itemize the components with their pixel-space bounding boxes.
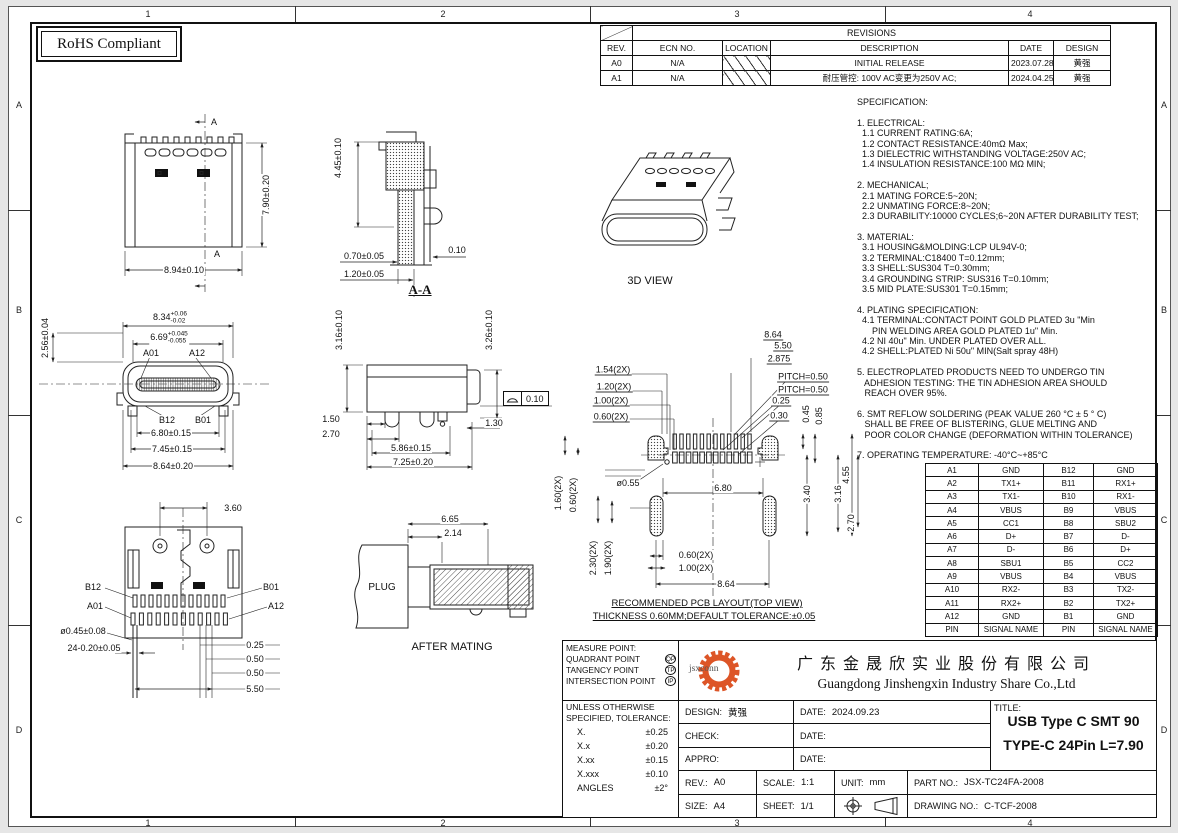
spec-line: [857, 222, 1139, 232]
spec-line: [857, 440, 1139, 450]
measure-point-label: TANGENCY POINT: [566, 665, 639, 675]
zone-col: 1: [145, 818, 150, 828]
zone-row: D: [1161, 725, 1168, 735]
revisions-header-row: REV. ECN NO. LOCATION DESCRIPTION DATE D…: [601, 41, 1111, 56]
pin-cell: B9: [1044, 503, 1094, 516]
col-header: PIN: [1044, 623, 1094, 636]
revisions-corner: [601, 26, 633, 41]
measure-point-box: MEASURE POINT: QUADRANT POINT QP TANGENC…: [562, 640, 679, 701]
spec-line: SPECIFICATION:: [857, 97, 1139, 107]
spec-line: [857, 170, 1139, 180]
pin-label: B01: [194, 415, 212, 425]
spec-line: 3.5 MID PLATE:SUS301 T=0.15mm;: [857, 284, 1139, 294]
pin-row: A3 TX1- B10 RX1-: [926, 490, 1158, 503]
dim-label: 3.16: [833, 484, 843, 504]
pin-label: B12: [158, 415, 176, 425]
spec-line: [857, 294, 1139, 304]
spec-line: REACH OVER 95%.: [857, 388, 1139, 398]
signal-cell: GND: [979, 610, 1044, 623]
tolerance-digits: X.xxx: [577, 769, 599, 779]
tolerance-value: ±0.10: [646, 769, 668, 779]
tolerance-digits: X.x: [577, 741, 590, 751]
dim-label: 0.70±0.05: [343, 251, 385, 261]
signal-cell: CC1: [979, 517, 1044, 530]
pcb-caption: THICKNESS 0.60MM;DEFAULT TOLERANCE:±0.05: [592, 612, 817, 622]
dim-label: 5.50: [773, 341, 793, 352]
dim-label: 5.86±0.15: [390, 443, 432, 453]
dim-label: 4.55: [841, 465, 851, 485]
title-label: TITLE:: [991, 701, 1156, 713]
dim-label: ø0.45±0.08: [59, 626, 106, 636]
spec-line: 7. OPERATING TEMPERATURE: -40°C~+85°C: [857, 450, 1139, 460]
pin-cell: B4: [1044, 570, 1094, 583]
profile-tolerance-frame: 0.10: [503, 391, 549, 406]
spec-line: 2.3 DURABILITY:10000 CYCLES;6~20N AFTER …: [857, 211, 1139, 221]
field-label: DATE:: [800, 707, 826, 717]
col-header: ECN NO.: [633, 41, 723, 56]
dim-label: 8.64: [716, 579, 736, 589]
measure-point-rows: QUADRANT POINT QP TANGENCY POINT TP INTE…: [563, 653, 678, 686]
dim-label: 2.70: [846, 513, 856, 533]
spec-line: 4.2 SHELL:PLATED Ni 50u" MIN(Salt spray …: [857, 346, 1139, 356]
dim-label: 7.45±0.15: [151, 444, 193, 454]
dim-label: ø0.55: [615, 478, 640, 488]
tolerance-digits: X.xx: [577, 755, 595, 765]
spec-line: 1. ELECTRICAL:: [857, 118, 1139, 128]
dim-label: 8.64: [763, 330, 783, 341]
field-label: REV.:: [685, 778, 708, 788]
tolerance-digits: X.: [577, 727, 586, 737]
dim-label: 1.20±0.05: [343, 269, 385, 279]
spec-line: 5. ELECTROPLATED PRODUCTS NEED TO UNDERG…: [857, 367, 1139, 377]
spec-line: 2.2 UNMATING FORCE:8~20N;: [857, 201, 1139, 211]
dim-label: 0.10: [447, 245, 467, 255]
signal-cell: D+: [1094, 543, 1158, 556]
pin-rows: A1 GND B12 GND A2 TX1+ B11 RX1+ A3 TX1- …: [926, 464, 1158, 624]
signal-cell: CC2: [1094, 557, 1158, 570]
spec-line: POOR COLOR CHANGE (DEFORMATION WITHIN TO…: [857, 430, 1139, 440]
dim-label: 0.60(2X): [678, 550, 715, 560]
revisions-title: REVISIONS: [633, 26, 1111, 41]
dim-label: 24-0.20±0.05: [67, 643, 122, 653]
measure-point-code: IP: [665, 676, 676, 686]
profile-value: 0.10: [522, 392, 548, 405]
rev-cell: REV.: A0: [678, 770, 757, 795]
pin-table-footer: PIN SIGNAL NAME PIN SIGNAL NAME: [926, 623, 1158, 636]
tolerance-value: ±2°: [654, 783, 668, 793]
spec-line: 3. MATERIAL:: [857, 232, 1139, 242]
view-caption: AFTER MATING: [410, 642, 493, 652]
spec-line: ADHESION TESTING: THE TIN ADHESION AREA …: [857, 378, 1139, 388]
col-header: SIGNAL NAME: [1094, 623, 1158, 636]
company-logo-text: jsxconn: [689, 664, 719, 674]
pin-label: A01: [142, 348, 160, 358]
design-cell: DESIGN: 黄强: [678, 700, 794, 724]
signal-cell: RX2-: [979, 583, 1044, 596]
tolerance-value: ±0.15: [646, 755, 668, 765]
zone-row: A: [16, 100, 22, 110]
pin-cell: A1: [926, 464, 979, 477]
zone-row: C: [1161, 515, 1168, 525]
pin-cell: B8: [1044, 517, 1094, 530]
field-label: DESIGN:: [685, 707, 722, 717]
tolerance-rows: X. ±0.25 X.x ±0.20 X.xx ±0.15 X.xxx ±0.1…: [563, 723, 678, 793]
pin-row: A10 RX2- B3 TX2-: [926, 583, 1158, 596]
pin-cell: A12: [926, 610, 979, 623]
signal-cell: GND: [1094, 464, 1158, 477]
dim-label: 8.94±0.10: [163, 265, 205, 275]
field-value: 2024.09.23: [832, 707, 880, 718]
dim-label: PITCH=0.50: [777, 385, 829, 396]
zone-col: 2: [440, 9, 445, 19]
tolerance-row: X. ±0.25: [563, 723, 678, 737]
signal-cell: D-: [979, 543, 1044, 556]
spec-line: 3.1 HOUSING&MOLDING:LCP UL94V-0;: [857, 242, 1139, 252]
dim-label: 1.30: [484, 418, 504, 428]
pin-table: A1 GND B12 GND A2 TX1+ B11 RX1+ A3 TX1- …: [925, 463, 1158, 637]
pin-cell: B2: [1044, 596, 1094, 609]
field-label: SCALE:: [763, 778, 795, 788]
rev-cell: A1: [601, 71, 633, 86]
pin-cell: B3: [1044, 583, 1094, 596]
spec-line: 1.4 INSULATION RESISTANCE:100 MΩ MIN;: [857, 159, 1139, 169]
field-value: A0: [714, 777, 726, 788]
dim-label: 6.65: [440, 514, 460, 524]
drawing-no-cell: DRAWING NO.: C-TCF-2008: [907, 794, 1157, 818]
dim-label: 3.60: [223, 503, 243, 513]
zone-col: 2: [440, 818, 445, 828]
dim-label: 6.69+0.045-0.055: [149, 332, 189, 345]
tolerance-note: UNLESS OTHERWISE: [563, 701, 678, 712]
rev-cell: A0: [601, 56, 633, 71]
dim-label: 1.90(2X): [603, 540, 613, 577]
signal-cell: TX1+: [979, 477, 1044, 490]
pin-cell: A10: [926, 583, 979, 596]
dim-label: 1.00(2X): [678, 563, 715, 573]
rohs-label: RoHS Compliant: [41, 31, 177, 57]
zone-tick: [1157, 415, 1171, 416]
pin-row: A11 RX2+ B2 TX2+: [926, 596, 1158, 609]
dim-label: 0.85: [814, 406, 824, 426]
signal-cell: VBUS: [1094, 570, 1158, 583]
dim-label: 0.50: [245, 654, 265, 664]
dim-label: 6.80: [713, 483, 733, 493]
col-header: REV.: [601, 41, 633, 56]
pin-row: A6 D+ B7 D-: [926, 530, 1158, 543]
part-no-cell: PART NO.: JSX-TC24FA-2008: [907, 770, 1157, 795]
signal-cell: SBU2: [1094, 517, 1158, 530]
date-cell: 2023.07.28: [1009, 56, 1054, 71]
col-header: DATE: [1009, 41, 1054, 56]
zone-row: B: [16, 305, 22, 315]
pin-cell: A9: [926, 570, 979, 583]
profile-symbol-icon: [504, 392, 522, 405]
dim-label: 1.54(2X): [595, 365, 632, 376]
signal-cell: VBUS: [979, 503, 1044, 516]
zone-col: 4: [1027, 9, 1032, 19]
zone-row: B: [1161, 305, 1167, 315]
dim-label: 3.16±0.10: [334, 309, 344, 351]
location-cell: [723, 56, 771, 71]
field-value: JSX-TC24FA-2008: [964, 777, 1044, 788]
spec-line: [857, 357, 1139, 367]
pin-cell: B11: [1044, 477, 1094, 490]
appro-date-cell: DATE:: [793, 747, 991, 771]
dim-label: 3.40: [802, 484, 812, 504]
dim-label: 4.45±0.10: [333, 137, 343, 179]
dim-label: 1.00(2X): [593, 396, 630, 407]
dim-label: 0.25: [245, 640, 265, 650]
dim-label: 8.34+0.06-0.02: [152, 312, 188, 325]
revisions-rows: A0 N/A INITIAL RELEASE 2023.07.28 黄强 A1 …: [601, 56, 1111, 86]
tolerance-box: UNLESS OTHERWISE SPECIFIED, TOLERANCE: X…: [562, 700, 679, 818]
check-cell: CHECK:: [678, 723, 794, 748]
pin-cell: A2: [926, 477, 979, 490]
pin-row: A8 SBU1 B5 CC2: [926, 557, 1158, 570]
company-name-cn: 广东金晟欣实业股份有限公司: [757, 650, 1136, 674]
spec-line: 2.1 MATING FORCE:5~20N;: [857, 191, 1139, 201]
tolerance-value: ±0.25: [646, 727, 668, 737]
dim-label: 2.875: [767, 354, 792, 365]
spec-line: PIN WELDING AREA GOLD PLATED 1u" Min.: [857, 326, 1139, 336]
zone-tick: [590, 818, 591, 827]
zone-row: C: [16, 515, 23, 525]
title-box: TITLE: USB Type C SMT 90 TYPE-C 24Pin L=…: [990, 700, 1157, 771]
pin-label: A12: [188, 348, 206, 358]
scale-cell: SCALE: 1:1: [756, 770, 835, 795]
dim-label: 1.60(2X): [553, 475, 563, 512]
zone-col: 1: [145, 9, 150, 19]
zone-tick: [8, 210, 30, 211]
description-cell: INITIAL RELEASE: [771, 56, 1009, 71]
ecn-cell: N/A: [633, 71, 723, 86]
dim-label: 0.50: [245, 668, 265, 678]
pin-cell: A4: [926, 503, 979, 516]
spec-line: [857, 107, 1139, 117]
plug-label: PLUG: [367, 583, 396, 593]
revision-row: A1 N/A 耐压管控: 100V AC变更为250V AC; 2024.04.…: [601, 71, 1111, 86]
signal-cell: GND: [979, 464, 1044, 477]
spec-line: 4.2 NI 40u" Min. UNDER PLATED OVER ALL.: [857, 336, 1139, 346]
field-value: 1:1: [801, 777, 814, 788]
spec-line: 3.2 TERMINAL:C18400 T=0.12mm;: [857, 253, 1139, 263]
signal-cell: GND: [1094, 610, 1158, 623]
signal-cell: RX1+: [1094, 477, 1158, 490]
description-cell: 耐压管控: 100V AC变更为250V AC;: [771, 71, 1009, 86]
field-label: APPRO:: [685, 754, 719, 764]
col-header: SIGNAL NAME: [979, 623, 1044, 636]
spec-line: SHALL BE FREE OF BLISTERING, GLUE MELTIN…: [857, 419, 1139, 429]
projection-cell: [834, 794, 908, 818]
projection-symbol-icon: [839, 796, 903, 816]
zone-tick: [1157, 210, 1171, 211]
tolerance-row: X.xxx ±0.10: [563, 765, 678, 779]
dim-label: 2.56±0.04: [40, 317, 50, 359]
field-label: DRAWING NO.:: [914, 801, 978, 811]
signal-cell: TX1-: [979, 490, 1044, 503]
section-mark: A: [213, 249, 221, 259]
tolerance-note: SPECIFIED, TOLERANCE:: [563, 712, 678, 723]
pin-cell: A8: [926, 557, 979, 570]
signal-cell: VBUS: [979, 570, 1044, 583]
signal-cell: D-: [1094, 530, 1158, 543]
zone-tick: [8, 625, 30, 626]
zone-tick: [1157, 625, 1171, 626]
pin-cell: A6: [926, 530, 979, 543]
measure-point-code: TP: [665, 665, 676, 675]
revision-row: A0 N/A INITIAL RELEASE 2023.07.28 黄强: [601, 56, 1111, 71]
pin-label: A12: [267, 601, 285, 611]
spec-line: 2. MECHANICAL;: [857, 180, 1139, 190]
zone-row: D: [16, 725, 23, 735]
dim-label: 5.50: [245, 684, 265, 694]
signal-cell: TX2-: [1094, 583, 1158, 596]
col-header: DESCRIPTION: [771, 41, 1009, 56]
pin-cell: A7: [926, 543, 979, 556]
dim-label: 6.80±0.15: [150, 428, 192, 438]
spec-line: 1.3 DIELECTRIC WITHSTANDING VOLTAGE:250V…: [857, 149, 1139, 159]
pin-cell: A3: [926, 490, 979, 503]
zone-tick: [295, 6, 296, 22]
pin-cell: B5: [1044, 557, 1094, 570]
pin-cell: B7: [1044, 530, 1094, 543]
dim-label: 7.90±0.20: [261, 174, 271, 216]
company-logo: jsxconn: [695, 647, 743, 695]
section-mark: A: [210, 117, 218, 127]
section-caption: A-A: [407, 285, 432, 295]
field-value: mm: [870, 777, 886, 788]
dim-label: 0.60(2X): [593, 412, 630, 423]
specification-block: SPECIFICATION:1. ELECTRICAL: 1.1 CURRENT…: [857, 97, 1139, 461]
pin-row: A9 VBUS B4 VBUS: [926, 570, 1158, 583]
dim-label: 2.30(2X): [588, 540, 598, 577]
signal-cell: SBU1: [979, 557, 1044, 570]
measure-point-row: TANGENCY POINT TP: [563, 664, 678, 675]
signal-cell: RX1-: [1094, 490, 1158, 503]
ecn-cell: N/A: [633, 56, 723, 71]
measure-point-row: INTERSECTION POINT IP: [563, 675, 678, 686]
field-label: SIZE:: [685, 801, 708, 811]
field-value: A4: [714, 801, 726, 812]
measure-point-label: QUADRANT POINT: [566, 654, 640, 664]
zone-tick: [885, 818, 886, 827]
zone-col: 3: [734, 818, 739, 828]
spec-line: [857, 398, 1139, 408]
field-label: DATE:: [800, 731, 826, 741]
pin-label: A01: [86, 601, 104, 611]
zone-row: A: [1161, 100, 1167, 110]
tolerance-row: X.x ±0.20: [563, 737, 678, 751]
pin-cell: A11: [926, 596, 979, 609]
signal-cell: RX2+: [979, 596, 1044, 609]
spec-line: 4.1 TERMINAL:CONTACT POINT GOLD PLATED 3…: [857, 315, 1139, 325]
field-value: 黄强: [728, 705, 747, 719]
unit-cell: UNIT: mm: [834, 770, 908, 795]
dim-label: 2.70: [321, 429, 341, 439]
rohs-badge: RoHS Compliant: [36, 26, 182, 62]
dim-label: PITCH=0.50: [777, 372, 829, 383]
pin-label: B01: [262, 582, 280, 592]
pin-row: A5 CC1 B8 SBU2: [926, 517, 1158, 530]
tolerance-row: ANGLES ±2°: [563, 779, 678, 793]
revisions-table: REVISIONS REV. ECN NO. LOCATION DESCRIPT…: [600, 25, 1111, 86]
dim-label: 0.25: [771, 396, 791, 407]
pin-row: A2 TX1+ B11 RX1+: [926, 477, 1158, 490]
field-value: C-TCF-2008: [984, 801, 1037, 812]
dim-label: 1.50: [321, 414, 341, 424]
field-label: CHECK:: [685, 731, 719, 741]
zone-tick: [8, 415, 30, 416]
spec-line: 4. PLATING SPECIFICATION:: [857, 305, 1139, 315]
col-header: LOCATION: [723, 41, 771, 56]
drawing-title-2: TYPE-C 24Pin L=7.90: [991, 737, 1156, 753]
measure-point-title: MEASURE POINT:: [563, 641, 678, 653]
spec-line: 6. SMT REFLOW SOLDERING (PEAK VALUE 260 …: [857, 409, 1139, 419]
measure-point-code: QP: [665, 654, 676, 664]
dim-label: 3.26±0.10: [484, 309, 494, 351]
design-date-cell: DATE: 2024.09.23: [793, 700, 991, 724]
company-header: jsxconn 广东金晟欣实业股份有限公司 Guangdong Jinsheng…: [678, 640, 1157, 701]
field-label: DATE:: [800, 754, 826, 764]
col-header: PIN: [926, 623, 979, 636]
zone-col: 4: [1027, 818, 1032, 828]
measure-point-row: QUADRANT POINT QP: [563, 653, 678, 664]
location-cell: [723, 71, 771, 86]
dim-label: 1.20(2X): [596, 382, 633, 393]
dim-label: 0.45: [801, 404, 811, 424]
design-cell: 黄强: [1054, 71, 1111, 86]
pin-cell: A5: [926, 517, 979, 530]
sheet-cell: SHEET: 1/1: [756, 794, 835, 818]
dim-label: 7.25±0.20: [392, 457, 434, 467]
dim-label: 2.14: [443, 528, 463, 538]
appro-cell: APPRO:: [678, 747, 794, 771]
field-label: SHEET:: [763, 801, 795, 811]
check-date-cell: DATE:: [793, 723, 991, 748]
pin-cell: B10: [1044, 490, 1094, 503]
pin-row: A7 D- B6 D+: [926, 543, 1158, 556]
company-name-en: Guangdong Jinshengxin Industry Share Co.…: [757, 676, 1136, 692]
col-header: DESIGN: [1054, 41, 1111, 56]
signal-cell: D+: [979, 530, 1044, 543]
measure-point-label: INTERSECTION POINT: [566, 676, 655, 686]
tolerance-row: X.xx ±0.15: [563, 751, 678, 765]
signal-cell: TX2+: [1094, 596, 1158, 609]
zone-tick: [295, 818, 296, 827]
iso-3d-drawing: [572, 138, 747, 278]
spec-line: 1.2 CONTACT RESISTANCE:40mΩ Max;: [857, 139, 1139, 149]
size-cell: SIZE: A4: [678, 794, 757, 818]
pin-row: A1 GND B12 GND: [926, 464, 1158, 477]
pin-cell: B6: [1044, 543, 1094, 556]
signal-cell: VBUS: [1094, 503, 1158, 516]
pin-label: B12: [84, 582, 102, 592]
dim-label: 8.64±0.20: [152, 461, 194, 471]
dim-label: 0.30: [769, 411, 789, 422]
pin-row: A12 GND B1 GND: [926, 610, 1158, 623]
field-value: 1/1: [801, 801, 814, 812]
pin-row: A4 VBUS B9 VBUS: [926, 503, 1158, 516]
drawing-title-1: USB Type C SMT 90: [991, 713, 1156, 729]
date-cell: 2024.04.25: [1009, 71, 1054, 86]
spec-line: 1.1 CURRENT RATING:6A;: [857, 128, 1139, 138]
tolerance-value: ±0.20: [646, 741, 668, 751]
dim-label: 0.60(2X): [568, 477, 578, 514]
zone-tick: [885, 6, 886, 22]
spec-line: 3.3 SHELL:SUS304 T=0.30mm;: [857, 263, 1139, 273]
pin-cell: B12: [1044, 464, 1094, 477]
zone-col: 3: [734, 9, 739, 19]
